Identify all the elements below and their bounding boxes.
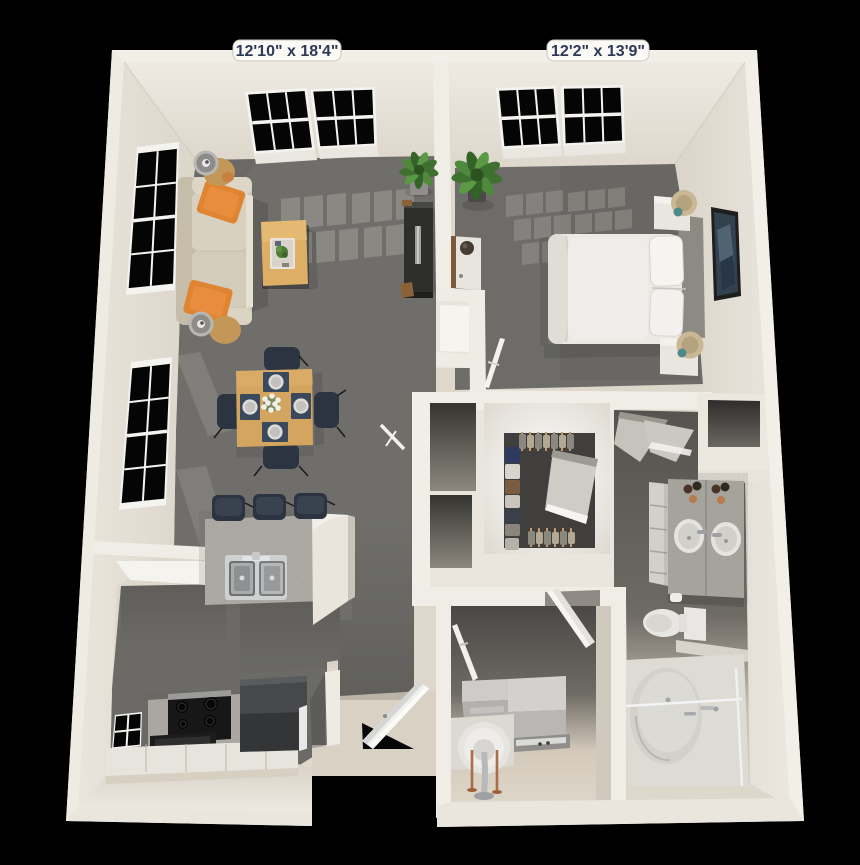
svg-text:12'2" x 13'9": 12'2" x 13'9" (551, 43, 645, 60)
svg-text:12'10" x 18'4": 12'10" x 18'4" (236, 43, 339, 60)
